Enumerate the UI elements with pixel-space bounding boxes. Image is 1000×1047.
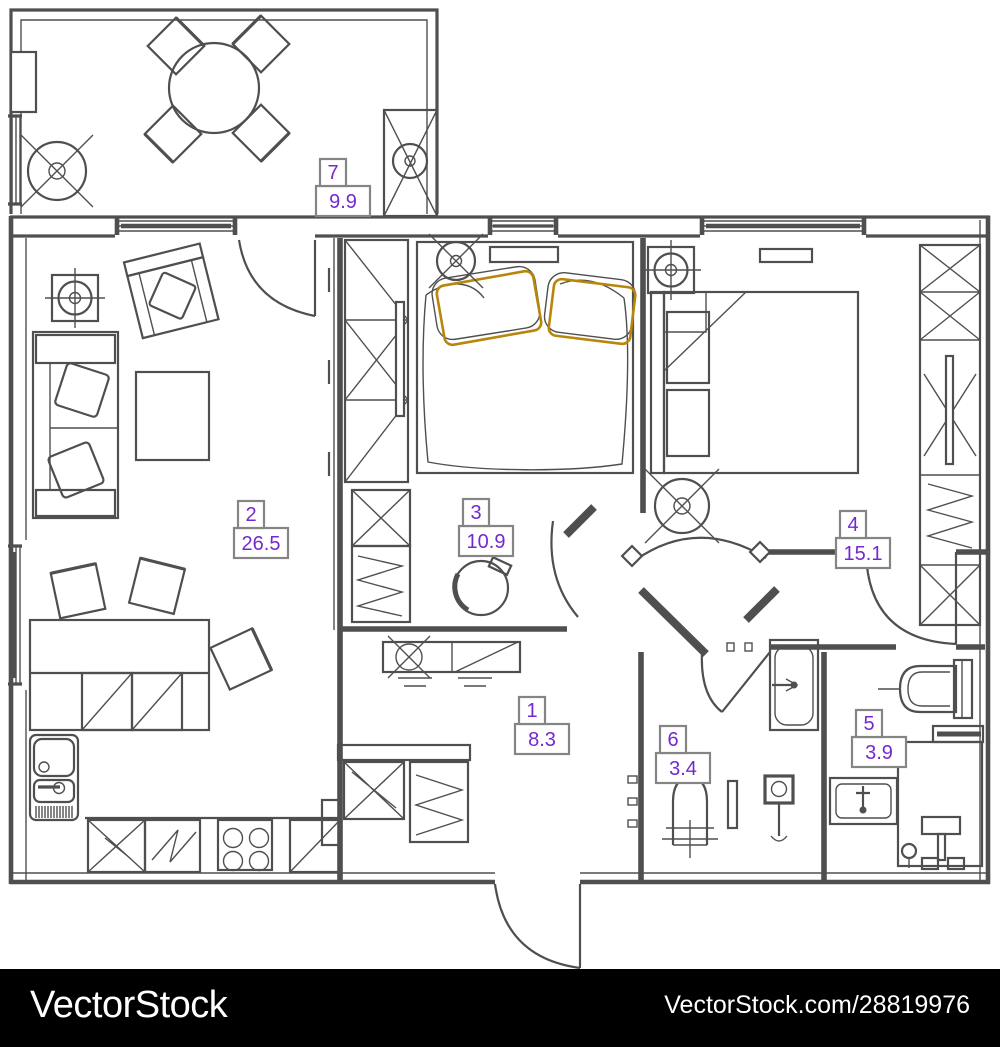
washing-machine [898, 742, 982, 869]
pillow [436, 270, 543, 346]
wall-shelf [760, 249, 812, 262]
toilet [878, 660, 972, 718]
washbasin [765, 776, 793, 841]
room-number: 6 [667, 729, 678, 751]
light-fixture-hall [645, 469, 719, 543]
kitchen-table [30, 620, 209, 730]
room-number: 7 [327, 162, 338, 184]
balcony-door [239, 240, 315, 316]
light-fixture [45, 268, 105, 328]
light-fixture [21, 135, 93, 207]
wc-door [702, 652, 770, 712]
kitchen-sink [30, 735, 78, 820]
partition [728, 781, 737, 828]
chair [129, 558, 185, 614]
balcony [8, 10, 437, 216]
room-label-7: 7 9.9 [316, 159, 370, 216]
doors [239, 240, 956, 968]
kitchen-counter [85, 818, 340, 872]
chair [210, 628, 271, 689]
wall-pier [11, 52, 36, 112]
headboard-shelves [651, 292, 709, 473]
chair [145, 106, 202, 163]
wall-shelf [490, 247, 558, 262]
vectorstock-logo: VectorStock [30, 984, 227, 1033]
room-area: 26.5 [242, 533, 281, 555]
room-number: 5 [863, 713, 874, 735]
armchair [124, 244, 219, 339]
toilet [662, 778, 718, 858]
window-bedroom-middle [488, 217, 558, 235]
room-label-6: 6 3.4 [656, 726, 710, 783]
room-number: 4 [847, 514, 858, 536]
wardrobe [345, 240, 408, 482]
room-area: 9.9 [329, 191, 357, 213]
window-balcony-wall [115, 217, 237, 235]
bedroom-right [641, 240, 980, 625]
hall-wardrobe [322, 745, 470, 845]
chair [233, 16, 290, 73]
room-area: 15.1 [844, 543, 883, 565]
room-area: 3.9 [865, 742, 893, 764]
cabinet [352, 490, 410, 622]
floor-plan: 1 8.3 2 26.5 3 10.9 4 15.1 5 3.9 [0, 0, 1000, 969]
stock-image-page: 1 8.3 2 26.5 3 10.9 4 15.1 5 3.9 [0, 0, 1000, 1047]
sink-counter [830, 778, 897, 824]
double-bed [417, 242, 637, 473]
watermark-bar: VectorStock VectorStock.com/28819976 [0, 969, 1000, 1047]
room-number: 1 [526, 700, 537, 722]
sofa [33, 332, 118, 518]
room-number: 3 [470, 502, 481, 524]
entrance-door [495, 884, 580, 968]
hall-cabinet-top [383, 636, 520, 678]
room-area: 3.4 [669, 758, 697, 780]
corridor-door [622, 538, 770, 566]
light-fixture [429, 234, 483, 288]
room-label-1: 1 8.3 [515, 697, 569, 754]
room-label-2: 2 26.5 [234, 501, 288, 558]
hallway [322, 745, 470, 845]
pillow [548, 278, 636, 345]
bedroom-middle [345, 234, 637, 678]
room-labels: 1 8.3 2 26.5 3 10.9 4 15.1 5 3.9 [234, 159, 906, 783]
bathtub [770, 640, 818, 730]
room-label-3: 3 10.9 [459, 499, 513, 556]
chair [51, 564, 106, 619]
vectorstock-credit: VectorStock.com/28819976 [664, 991, 970, 1026]
shelf [933, 726, 983, 742]
room-label-4: 4 15.1 [836, 511, 890, 568]
chair [233, 105, 290, 162]
wardrobe [920, 245, 980, 625]
room-area: 10.9 [467, 531, 506, 553]
floor-plan-canvas: 1 8.3 2 26.5 3 10.9 4 15.1 5 3.9 [0, 0, 1000, 969]
window-bedroom-right [700, 217, 866, 235]
desk-chair [454, 557, 511, 615]
stove [218, 820, 272, 871]
living-room [30, 244, 340, 872]
room-area: 8.3 [528, 729, 556, 751]
coffee-table [136, 372, 209, 460]
room-label-5: 5 3.9 [852, 710, 906, 767]
bedroom-middle-door [551, 521, 578, 617]
room-number: 2 [245, 504, 256, 526]
storage-box [384, 110, 437, 216]
